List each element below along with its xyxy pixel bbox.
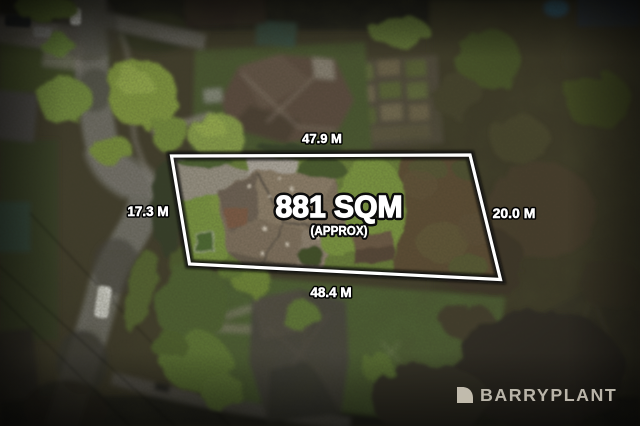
svg-text:BARRYPLANT: BARRYPLANT <box>480 385 617 405</box>
svg-text:48.4 M: 48.4 M <box>310 285 351 300</box>
svg-text:881 SQM: 881 SQM <box>276 189 403 224</box>
svg-text:20.0 M: 20.0 M <box>493 205 536 221</box>
svg-text:17.3 M: 17.3 M <box>127 204 168 219</box>
svg-text:47.9 M: 47.9 M <box>302 131 342 146</box>
svg-text:(APPROX): (APPROX) <box>311 223 368 238</box>
